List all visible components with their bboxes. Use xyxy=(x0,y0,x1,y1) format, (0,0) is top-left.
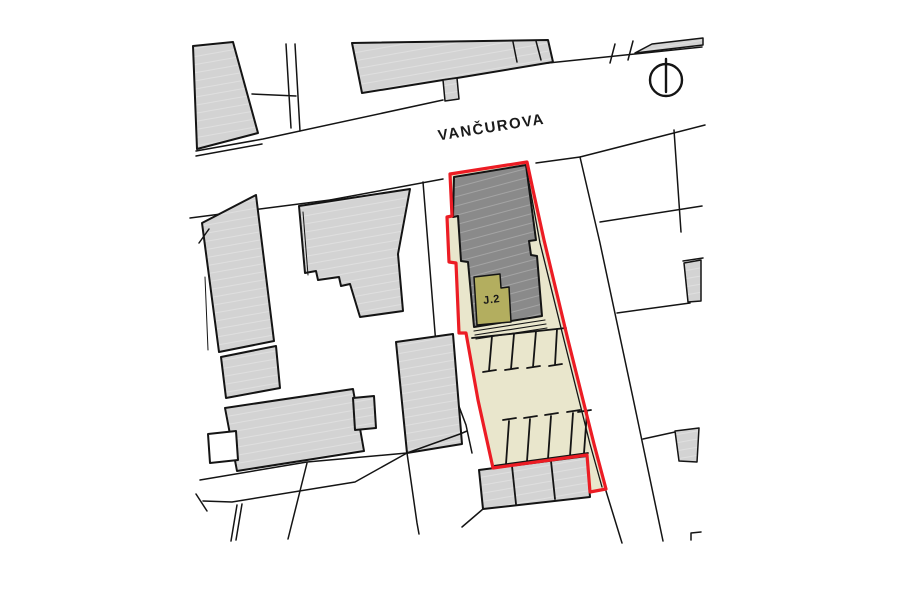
building-footprint xyxy=(396,334,462,453)
building-footprint xyxy=(675,428,699,462)
unit-j2-label: J.2 xyxy=(483,293,501,307)
site-plan-map: VANČUROVA J.2 xyxy=(0,0,900,600)
building-stub xyxy=(443,78,459,101)
site-plan-page: VANČUROVA J.2 xyxy=(0,0,900,600)
building-annex xyxy=(353,396,376,430)
building-annex xyxy=(208,431,238,463)
